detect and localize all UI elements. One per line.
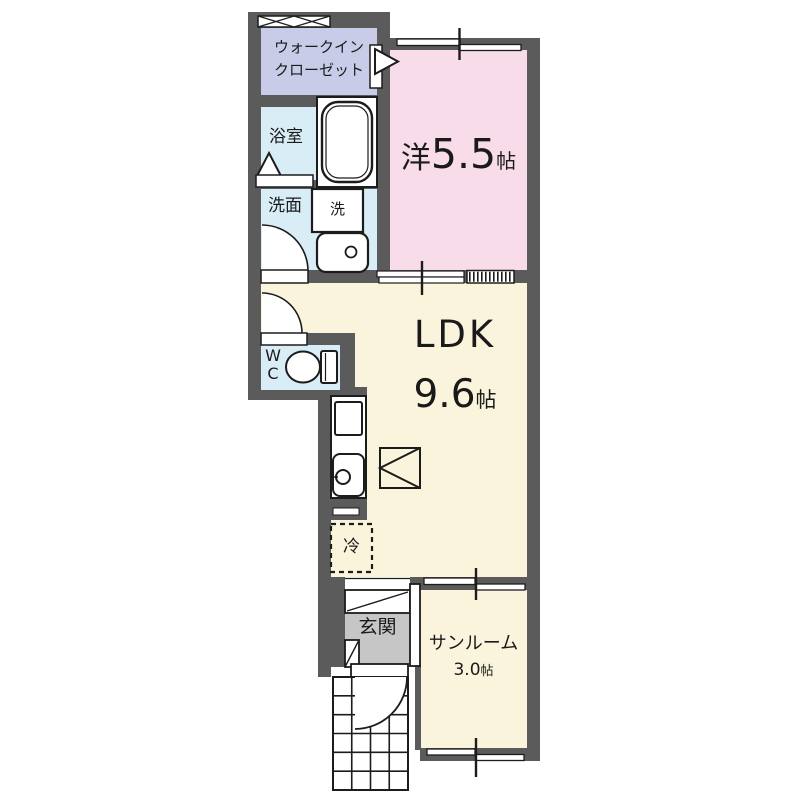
entrance-label: 玄関 [345, 616, 410, 639]
bedroom-slider-pane-left [377, 271, 464, 277]
bedroom-size: 5.5 [431, 130, 496, 178]
floor-plan: ウォークインクローゼット 浴室 洗面 洗 WC 洋5.5帖 LDK 9.6帖 冷… [0, 0, 800, 800]
bedroom-unit: 帖 [496, 149, 516, 173]
ldk-size-label: 9.6帖 [350, 372, 560, 419]
entrance-step [351, 664, 408, 677]
bath-label: 浴室 [261, 127, 311, 147]
toilet-bowl [286, 352, 320, 383]
refrigerator-label: 冷 [331, 537, 372, 557]
washroom-threshold [261, 270, 308, 283]
washing-machine-label: 洗 [312, 200, 363, 218]
wc-threshold [261, 333, 307, 345]
toilet-tank [321, 351, 337, 383]
ldk-unit: 帖 [476, 388, 497, 412]
sunroom-bottom-window-pane-right [476, 755, 524, 761]
wc-label: WC [258, 347, 288, 384]
entrance-sunroom-partition [410, 584, 420, 666]
kitchen-wall-marker [333, 508, 359, 515]
wic-label: ウォークインクローゼット [261, 36, 377, 81]
sunroom-top-window-pane-left [424, 578, 475, 585]
sunroom-bottom-window-pane-left [427, 749, 475, 755]
washbasin [317, 233, 368, 272]
sunroom-size-label: 3.0帖 [420, 660, 527, 680]
ldk-label: LDK [350, 313, 560, 357]
sunroom-size: 3.0 [453, 660, 480, 680]
sunroom-top-window-pane-right [476, 584, 525, 590]
bath-threshold [256, 175, 313, 187]
bedroom-window-pane-right [459, 45, 521, 51]
bedroom-label-prefix: 洋 [401, 141, 431, 176]
bedroom-label: 洋5.5帖 [390, 130, 527, 179]
kitchen-faucet [336, 470, 350, 484]
wc-label-line2: C [267, 364, 278, 383]
bathtub [322, 102, 372, 182]
washroom-label: 洗面 [259, 196, 311, 216]
wic-label-line1: ウォークイン [274, 38, 364, 56]
sunroom-unit: 帖 [481, 664, 494, 679]
wall-entrance-left [318, 590, 345, 667]
ldk-size: 9.6 [413, 372, 475, 417]
sunroom-label: サンルーム [420, 633, 527, 655]
washbasin-drain [346, 247, 357, 258]
wic-window [258, 16, 330, 27]
wc-label-line1: W [265, 346, 281, 365]
bedroom-window-pane-left [397, 39, 460, 46]
wic-label-line2: クローゼット [274, 61, 364, 79]
